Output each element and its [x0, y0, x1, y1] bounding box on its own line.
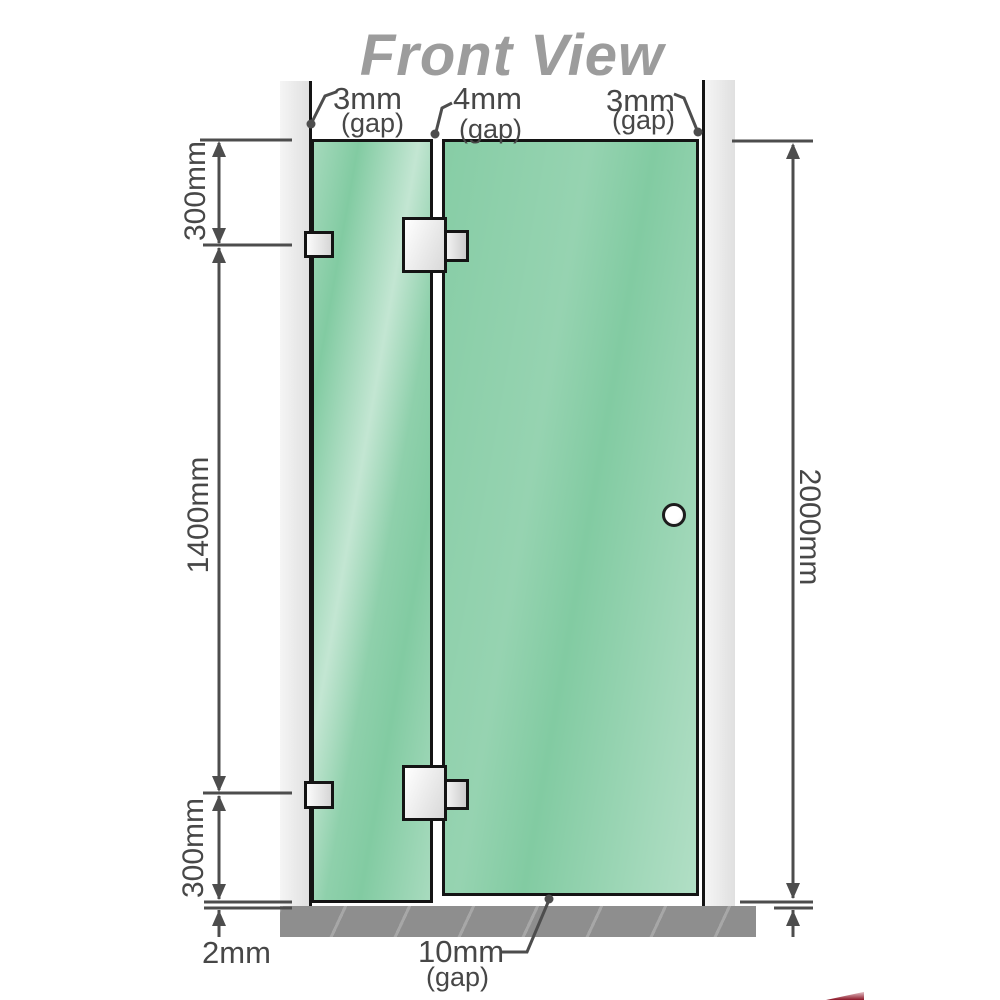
dim-label-left-upper: 300mm	[180, 121, 212, 261]
gap-note-top-right: (gap)	[612, 107, 675, 134]
door-handle-knob	[662, 503, 686, 527]
hinge-top	[402, 217, 447, 273]
door-glass-panel	[442, 139, 699, 896]
shower-screen-front-view-diagram: Front View	[0, 0, 1000, 1000]
dim-label-left-middle: 1400mm	[183, 445, 215, 585]
wall-bracket-bottom	[304, 781, 334, 809]
wall-channel-right	[702, 80, 735, 906]
dim-label-floor-clearance: 2mm	[202, 937, 271, 968]
floor-base	[280, 906, 756, 937]
dim-label-left-lower: 300mm	[178, 778, 210, 918]
hinge-top-tab	[444, 230, 469, 262]
hinge-bottom	[402, 765, 447, 821]
diagram-title: Front View	[262, 22, 762, 84]
hinge-bottom-tab	[444, 779, 469, 810]
gap-note-door-bottom: (gap)	[426, 964, 489, 991]
dim-label-right-total: 2000mm	[793, 457, 825, 597]
corner-watermark-fragment	[826, 991, 864, 1000]
gap-label-top-center: 4mm	[453, 83, 522, 114]
gap-note-top-center: (gap)	[459, 116, 522, 143]
gap-note-top-left: (gap)	[341, 110, 404, 137]
wall-bracket-top	[304, 231, 334, 258]
